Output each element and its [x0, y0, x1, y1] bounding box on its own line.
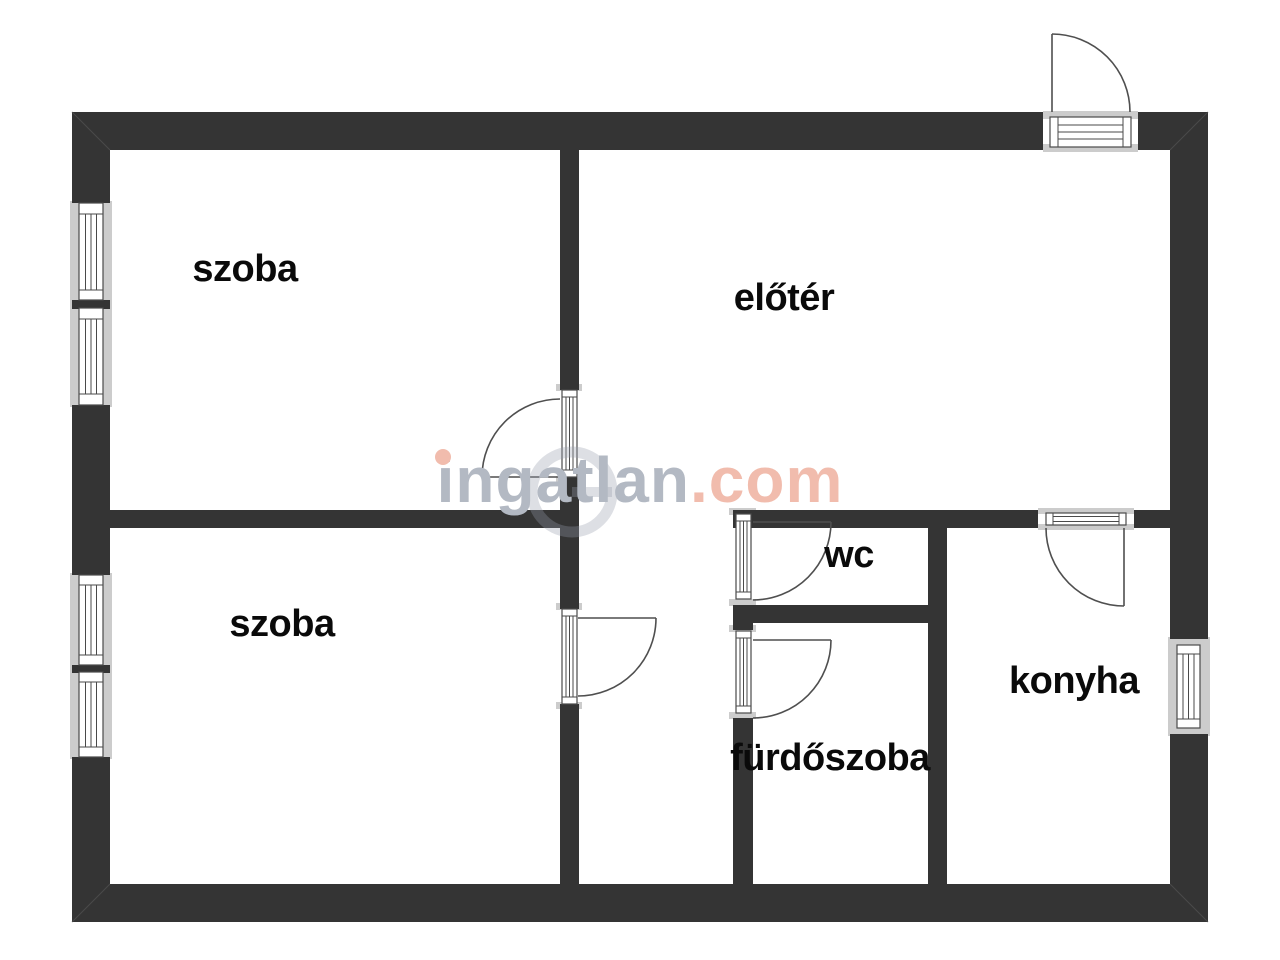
- room-label-szoba-upper: szoba: [192, 248, 299, 290]
- door-room-lower: [562, 609, 656, 704]
- door-swing-arc: [753, 522, 831, 600]
- door-swing-arc: [578, 618, 656, 696]
- window-left-upper-2: [79, 308, 103, 405]
- bathroom-west-wall-segment: [733, 623, 753, 630]
- hall-south-wall-segment: [1134, 510, 1170, 528]
- room-label-konyha: konyha: [1009, 660, 1140, 702]
- left-wall-segment: [72, 112, 110, 203]
- wc-bathroom-divider-wall: [733, 605, 947, 623]
- watermark-tld: .com: [690, 444, 843, 516]
- room-label-szoba-lower: szoba: [229, 603, 336, 645]
- door-swing-arc: [1052, 34, 1130, 112]
- door-cap: [729, 599, 756, 606]
- watermark-brand: ingatlan: [437, 444, 690, 516]
- room-label-furdoszoba: fürdőszoba: [730, 737, 931, 779]
- watermark-i-dot: [435, 449, 451, 465]
- left-wall-segment: [72, 757, 110, 884]
- bottom-wall: [72, 884, 1208, 922]
- room-label-eloter: előtér: [734, 277, 835, 319]
- window-left-upper-1: [79, 203, 103, 300]
- door-bathroom: [736, 631, 831, 718]
- watermark-text: ingatlan.com: [437, 444, 844, 516]
- floorplan-canvas: ingatlan.com szoba előtér szoba wc fürdő…: [0, 0, 1280, 960]
- floorplan-svg: ingatlan.com szoba előtér szoba wc fürdő…: [0, 0, 1280, 960]
- window-left-lower-2: [79, 672, 103, 757]
- entrance-door: [1050, 34, 1131, 147]
- central-wall-segment: [560, 704, 579, 884]
- central-wall-segment: [560, 150, 579, 390]
- left-wall-segment: [72, 405, 110, 575]
- right-wall-segment: [1170, 112, 1208, 639]
- room-label-wc: wc: [823, 534, 874, 576]
- kitchen-west-wall: [928, 510, 947, 884]
- window-kitchen: [1177, 645, 1200, 728]
- top-wall-left-segment: [72, 112, 1043, 150]
- window-left-lower-1: [79, 575, 103, 665]
- door-threshold: [1046, 513, 1126, 525]
- door-swing-arc: [753, 640, 831, 718]
- right-wall-segment: [1170, 734, 1208, 884]
- door-swing-arc: [1046, 528, 1124, 606]
